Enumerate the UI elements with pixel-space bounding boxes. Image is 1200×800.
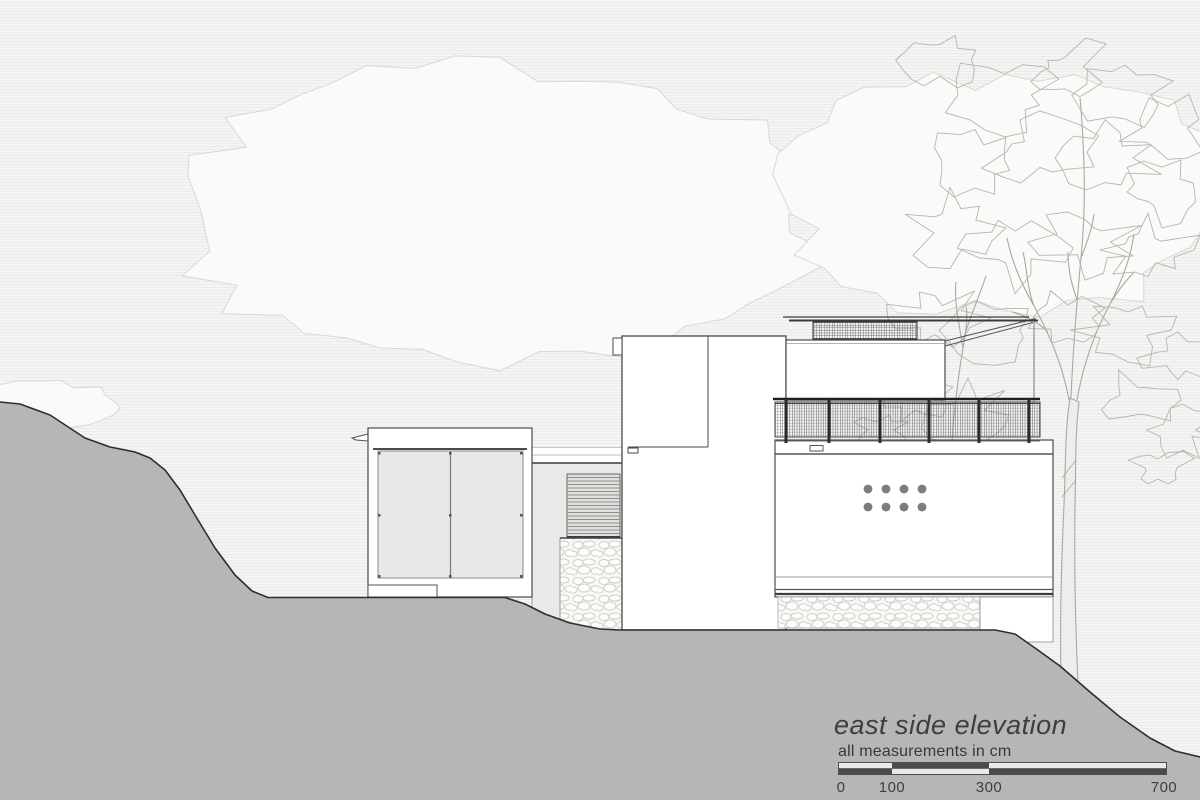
house-elevation — [352, 317, 1053, 642]
elevation-sheet: east side elevation all measurements in … — [0, 0, 1200, 800]
middle-section — [532, 448, 622, 632]
tower-left-tab — [613, 338, 622, 355]
stone-base — [778, 597, 980, 628]
decorative-outline — [1070, 306, 1177, 366]
stone-pier — [560, 538, 622, 632]
decorative-outline — [182, 56, 846, 371]
elevation-drawing — [0, 0, 1200, 800]
background-cloud-outlines — [0, 56, 1200, 438]
railing-mesh — [775, 402, 1040, 437]
left-building — [352, 428, 532, 597]
gutter-bracket — [352, 434, 368, 441]
main-wall — [775, 440, 1053, 642]
decorative-outline — [1147, 404, 1200, 458]
decorative-outline — [1137, 332, 1200, 381]
decorative-outline — [1102, 370, 1182, 421]
decorative-outline — [1128, 452, 1194, 484]
tower-small-box — [628, 448, 638, 453]
wall-vent-slot — [810, 446, 823, 452]
balcony-railing — [773, 399, 1040, 444]
decorative-outline — [773, 72, 1200, 317]
clerestory-vent — [813, 322, 917, 339]
louver-vent-panel — [567, 474, 620, 537]
central-tower — [613, 336, 786, 630]
tree-trunk — [1061, 398, 1079, 706]
plinth-step — [368, 585, 437, 597]
